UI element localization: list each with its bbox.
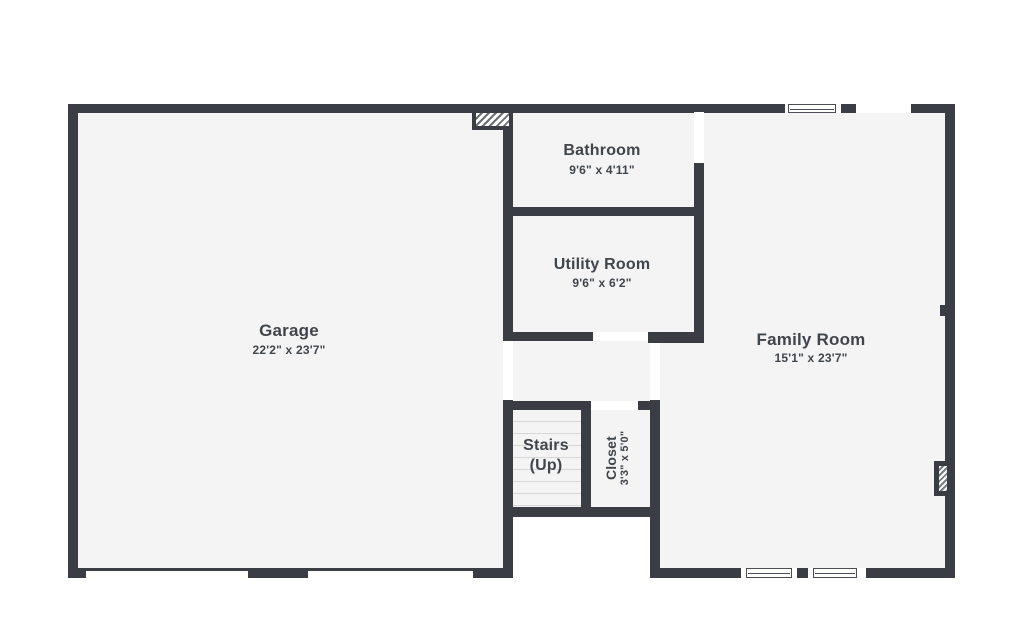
wall-notch [940,305,950,316]
fireplace-icon [934,461,953,496]
room-label-stairs: Stairs (Up) [523,436,569,476]
chimney-hatch-icon [472,109,513,130]
wall-bathroom-utility-divider [503,207,704,216]
stairs-label-line2: (Up) [523,456,569,476]
window-icon [746,568,792,578]
wall-top [68,104,785,113]
wall-right-exterior [945,104,955,578]
door-opening-utility [593,332,648,341]
room-dims-garage: 22'2" x 23'7" [252,343,325,357]
wall-closet-right [650,400,660,578]
wall-stairs-top [503,401,591,410]
wall-top-segment [841,104,856,113]
window-icon [813,568,857,578]
exterior-notch [513,517,650,585]
room-label-closet: Closet 3'3" x 5'0" [604,431,632,486]
passage-hall-family [650,343,660,400]
room-label-utility: Utility Room [554,256,651,274]
wall-left-exterior [68,104,78,578]
closet-label: Closet [604,431,619,486]
room-label-family: Family Room [757,330,866,350]
wall-family-bottom [866,568,955,578]
door-opening-bathroom [694,112,704,163]
window-icon [788,104,836,113]
wall-garage-right [503,104,513,341]
room-label-bathroom: Bathroom [563,142,640,160]
closet-dims: 3'3" x 5'0" [619,431,632,486]
fireplace-hatch-icon [939,466,947,491]
wall-stairs-closet-divider [581,401,591,517]
wall-garage-right [503,400,513,578]
room-label-garage: Garage [259,321,319,341]
wall-family-bottom [650,568,741,578]
wall-garage-bottom [248,568,308,578]
wall-bathroom-family [694,163,704,343]
room-dims-bathroom: 9'6" x 4'11" [569,163,635,177]
wall-family-bottom [797,568,808,578]
door-opening-closet [591,401,638,410]
room-dims-utility: 9'6" x 6'2" [572,276,631,290]
room-dims-family: 15'1" x 23'7" [774,351,847,365]
stairs-label-line1: Stairs [523,436,569,456]
floor-plan: Garage 22'2" x 23'7" Bathroom 9'6" x 4'1… [0,0,1024,622]
wall-utility-bottom [503,332,593,341]
door-opening-garage-hall [503,341,513,400]
